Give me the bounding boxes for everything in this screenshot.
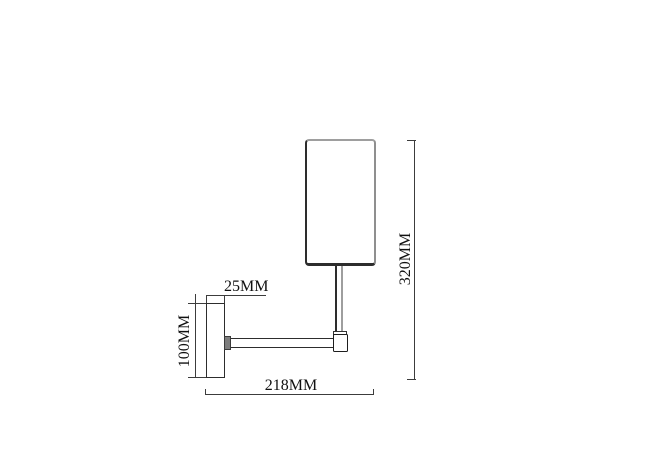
dim-tick-overall-height-top — [407, 140, 416, 141]
arm-joint-block — [333, 334, 349, 352]
dim-label-plate-height: 100MM — [177, 311, 193, 371]
dim-tick-projection-right — [373, 389, 374, 394]
technical-drawing-canvas: 25MM 100MM 218MM 320MM — [0, 0, 660, 466]
dim-line-plate-height — [195, 294, 196, 378]
dim-line-plate-width — [206, 295, 266, 296]
dim-label-overall-height: 320MM — [398, 229, 414, 289]
dim-tick-projection-left — [205, 389, 206, 394]
dim-ext-plate-width-right — [224, 295, 225, 303]
lamp-arm — [229, 338, 334, 349]
dim-label-overall-projection: 218MM — [260, 378, 322, 394]
arm-wall-collar — [224, 336, 231, 350]
dim-ext-plate-height-top — [188, 303, 206, 304]
lamp-stem — [335, 264, 343, 331]
dim-tick-overall-height-bottom — [407, 379, 416, 380]
lamp-shade — [305, 139, 376, 266]
dim-ext-plate-width-left — [206, 295, 207, 303]
dim-ext-plate-height-bottom — [188, 377, 206, 378]
wall-mount-plate — [206, 303, 225, 378]
dim-label-plate-width: 25MM — [224, 279, 268, 295]
